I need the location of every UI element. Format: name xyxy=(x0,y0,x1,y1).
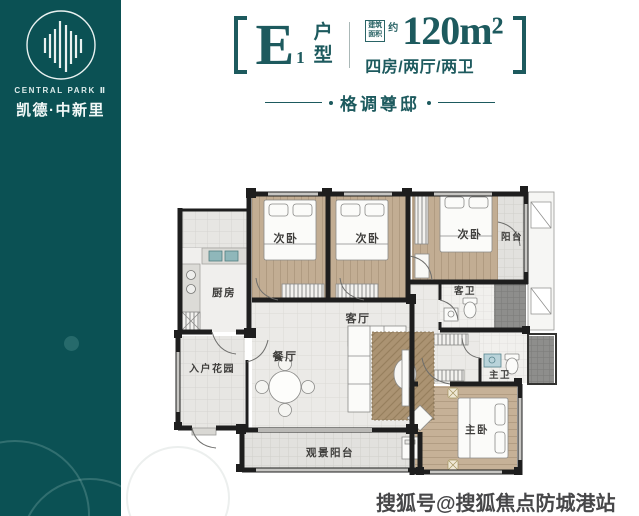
unit-title-row: E 1 户 型 建筑 面积 约 120m² 四房/两厅/两卫 xyxy=(234,12,525,77)
tagline-text: 格调尊邸 xyxy=(340,90,420,115)
wardrobe-icon xyxy=(282,284,324,298)
unit-header: E 1 户 型 建筑 面积 约 120m² 四房/两厅/两卫 xyxy=(121,12,639,115)
area-value: 120m² xyxy=(402,12,502,50)
brand-logo-block: CENTRAL PARK Ⅱ 凯德·中新里 xyxy=(0,8,121,120)
room-label-master-bath: 主卫 xyxy=(489,369,511,381)
room-label-entry-garden: 入户花园 xyxy=(189,362,235,375)
area-top-row: 建筑 面积 约 120m² xyxy=(365,12,502,50)
unit-type-char-top: 户 xyxy=(314,22,334,45)
floorplan-poster: CENTRAL PARK Ⅱ 凯德·中新里 E 1 户 型 建筑 xyxy=(0,0,639,516)
room-label-bedroom-a: 次卧 xyxy=(274,231,299,245)
bed-icon xyxy=(264,200,316,260)
room-label-living: 客厅 xyxy=(345,311,371,325)
tagline-dot-right xyxy=(427,101,431,105)
toilet-icon xyxy=(463,298,477,318)
brand-logo-text: CENTRAL PARK Ⅱ xyxy=(0,86,121,95)
unit-number: 1 xyxy=(296,48,305,68)
floor-plan: 厨房 次卧 次卧 次卧 阳台 客卫 客厅 餐厅 入户花园 观景阳台 主卫 主卧 xyxy=(172,160,584,480)
area-approx: 约 xyxy=(388,19,398,34)
flue-icon xyxy=(182,312,200,330)
layout-spec: 四房/两厅/两卫 xyxy=(365,53,502,77)
bed-icon xyxy=(440,194,492,252)
area-note-line2: 面积 xyxy=(368,31,382,40)
bathroom-sink-icon xyxy=(444,308,458,321)
bed-icon xyxy=(336,200,388,260)
room-label-balcony: 阳台 xyxy=(501,231,523,243)
wardrobe-icon xyxy=(415,194,428,244)
stove-icon xyxy=(187,285,196,294)
stove-icon xyxy=(187,271,196,280)
header-divider xyxy=(349,22,351,68)
entry-step xyxy=(192,428,216,435)
area-note-line1: 建筑 xyxy=(368,22,382,31)
room-label-master-bedroom: 主卧 xyxy=(465,423,489,436)
unit-code: E 1 xyxy=(255,21,304,69)
unit-type-label: 户 型 xyxy=(314,22,334,68)
room-label-bedroom-c: 次卧 xyxy=(458,227,483,241)
right-bracket-decor xyxy=(513,16,526,74)
tagline-dot-left xyxy=(329,101,333,105)
room-label-kitchen: 厨房 xyxy=(212,286,236,299)
tv-console-icon xyxy=(402,350,409,406)
area-info: 建筑 面积 约 120m² 四房/两厅/两卫 xyxy=(365,12,502,77)
room-label-view-balcony: 观景阳台 xyxy=(306,446,354,459)
tagline-line-right xyxy=(438,102,495,104)
brand-sidebar: CENTRAL PARK Ⅱ 凯德·中新里 xyxy=(0,0,121,516)
room-label-bedroom-b: 次卧 xyxy=(356,231,381,245)
watermark-text: 搜狐号@搜狐焦点防城港站 xyxy=(376,487,616,516)
brand-name: 凯德·中新里 xyxy=(0,99,121,120)
area-note-box: 建筑 面积 xyxy=(365,20,385,42)
tagline-line-left xyxy=(265,102,322,104)
room-label-dining: 餐厅 xyxy=(272,349,298,363)
tagline-row: 格调尊邸 xyxy=(265,90,495,115)
brand-logo-icon xyxy=(24,8,98,82)
unit-type-char-bottom: 型 xyxy=(314,45,334,68)
unit-letter: E xyxy=(255,21,294,69)
sidebar-dot-decor xyxy=(64,336,79,351)
sink-icon xyxy=(225,251,238,261)
left-bracket-decor xyxy=(234,16,247,74)
room-label-guest-bath: 客卫 xyxy=(453,285,476,297)
sink-icon xyxy=(209,251,222,261)
bathroom-sink-icon xyxy=(484,354,501,367)
